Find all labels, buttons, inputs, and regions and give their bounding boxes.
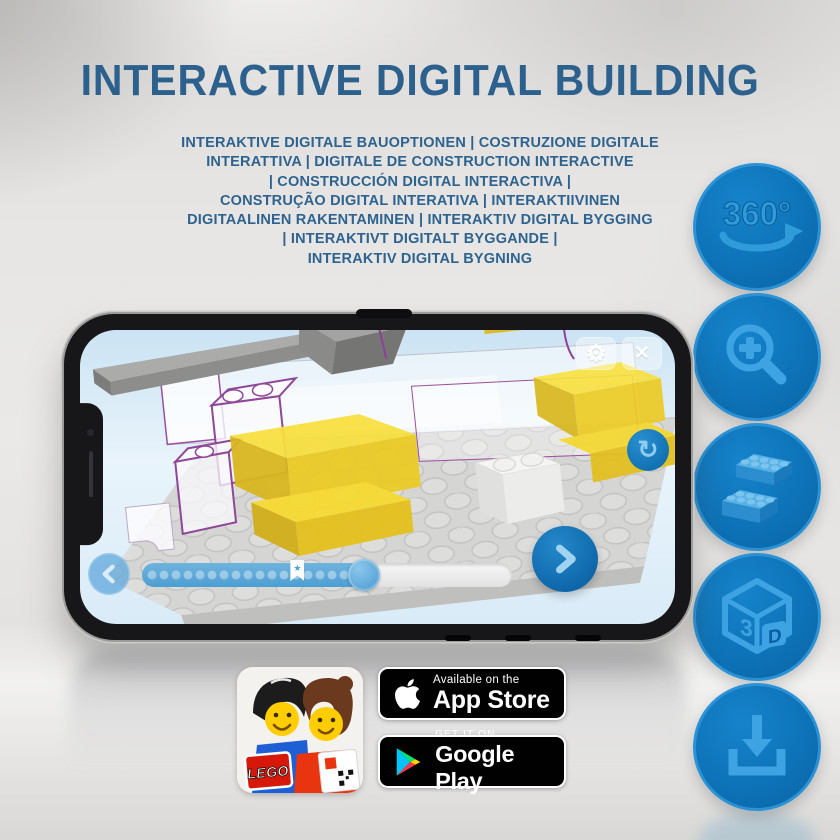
phone-screen: ⚙ ✕ ↻ ★ [80, 330, 675, 624]
close-icon: ✕ [634, 342, 650, 365]
chevron-left-icon [96, 561, 122, 587]
feature-zoom-button[interactable] [693, 293, 821, 421]
google-play-name: Google Play [435, 741, 564, 795]
feature-download-button[interactable] [693, 683, 821, 811]
camera-icon [87, 429, 94, 436]
google-play-icon [393, 745, 424, 779]
apple-icon [393, 677, 422, 711]
rotate-view-button[interactable]: ↻ [627, 429, 669, 471]
slider-handle[interactable] [348, 559, 380, 591]
svg-text:D: D [768, 625, 782, 648]
cube-3d-icon: 3 D [715, 575, 799, 659]
rotate-icon: ↻ [638, 435, 659, 465]
prev-step-button[interactable] [88, 553, 130, 595]
close-button[interactable]: ✕ [622, 337, 662, 370]
lego-app-icon[interactable]: LEGO [237, 667, 363, 793]
subtitle-line: INTERAKTIV DIGITAL BYGNING [110, 250, 730, 269]
phone-edge-slit [505, 635, 531, 641]
multilingual-subtitle: INTERAKTIVE DIGITALE BAUOPTIONEN | COSTR… [110, 134, 730, 269]
svg-text:360°: 360° [723, 195, 791, 232]
phone-edge-slit [575, 635, 601, 641]
subtitle-line: INTERAKTIVE DIGITALE BAUOPTIONEN | COSTR… [110, 134, 730, 153]
subtitle-line: | CONSTRUCCIÓN DIGITAL INTERACTIVA | [110, 173, 730, 192]
page-title: INTERACTIVE DIGITAL BUILDING [0, 56, 840, 106]
google-play-tagline: GET IT ON [435, 728, 564, 741]
app-store-badge[interactable]: Available on the App Store [378, 667, 566, 720]
next-step-button[interactable] [532, 526, 598, 592]
phone-edge-slit [445, 635, 471, 641]
phone: ⚙ ✕ ↻ ★ [64, 314, 691, 640]
slider-fill [142, 563, 364, 587]
bricks-icon [714, 444, 800, 530]
chevron-right-icon [548, 541, 582, 577]
download-icon [715, 705, 799, 789]
phone-power-button [356, 309, 412, 318]
google-play-badge[interactable]: GET IT ON Google Play [378, 735, 566, 788]
app-store-tagline: Available on the [433, 674, 550, 687]
settings-button[interactable]: ⚙ [576, 337, 616, 370]
app-store-name: App Store [433, 687, 550, 714]
build-progress-slider[interactable]: ★ [142, 563, 512, 587]
subtitle-line: CONSTRUÇÃO DIGITAL INTERATIVA | INTERAKT… [110, 192, 730, 211]
rotate-360-icon: 360° [709, 189, 805, 265]
phone-notch [80, 403, 103, 545]
speaker-slit [89, 451, 93, 497]
feature-360-button[interactable]: 360° [693, 163, 821, 291]
subtitle-line: DIGITAALINEN RAKENTAMINEN | INTERAKTIV D… [110, 211, 730, 230]
gear-icon: ⚙ [586, 340, 607, 367]
svg-text:3: 3 [740, 614, 753, 642]
subtitle-line: INTERATTIVA | DIGITALE DE CONSTRUCTION I… [110, 153, 730, 172]
feature-3d-button[interactable]: 3 D [693, 553, 821, 681]
subtitle-line: | INTERAKTIVT DIGITALT BYGGANDE | [110, 230, 730, 249]
lego-minifigures-art: LEGO [237, 667, 363, 793]
zoom-in-icon [717, 317, 797, 397]
feature-bricks-button[interactable] [693, 423, 821, 551]
